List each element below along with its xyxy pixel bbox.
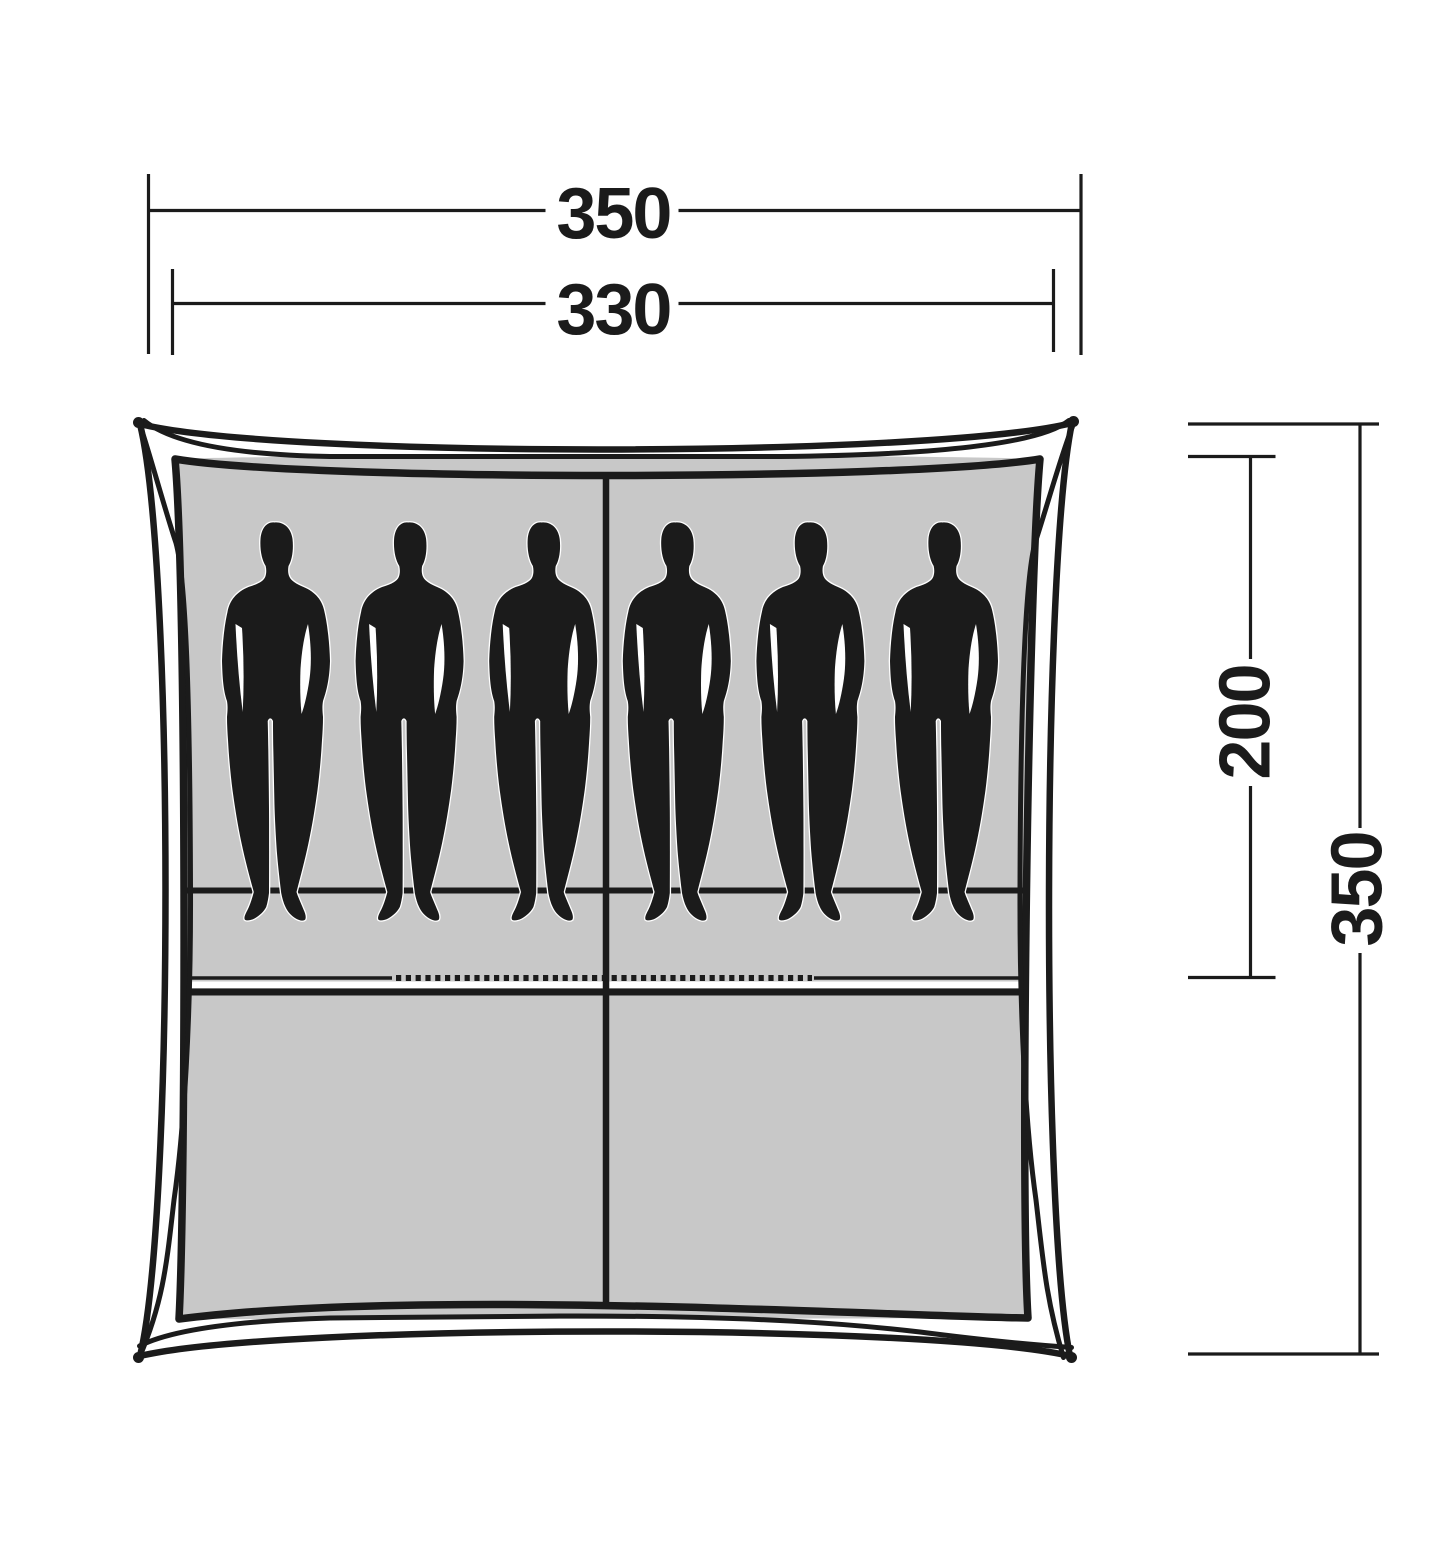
svg-text:350: 350 (556, 174, 670, 254)
svg-text:350: 350 (1318, 832, 1398, 946)
svg-text:200: 200 (1206, 665, 1286, 779)
svg-text:330: 330 (556, 270, 670, 350)
